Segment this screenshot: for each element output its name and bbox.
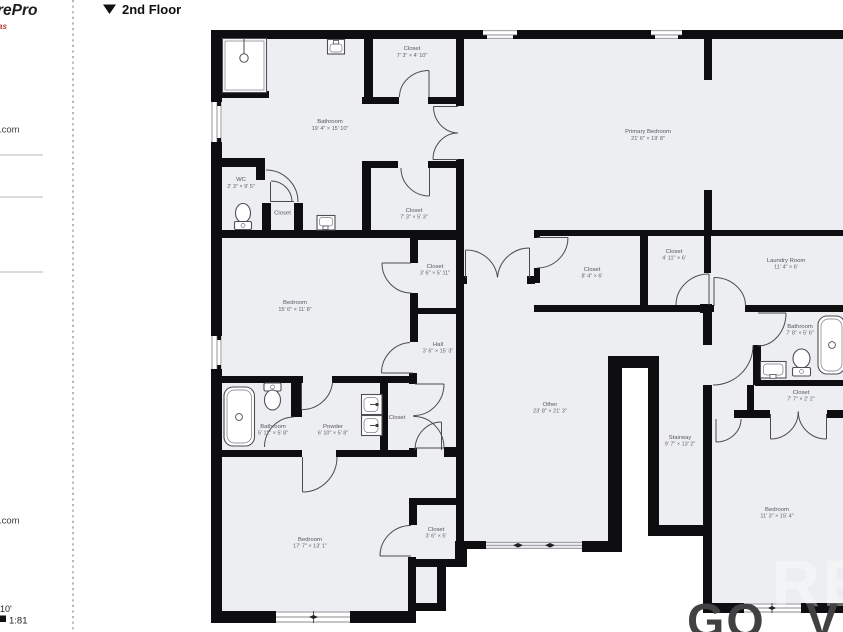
svg-text:Primary Bedroom: Primary Bedroom [625,129,671,135]
svg-text:11' 3" × 15' 4": 11' 3" × 15' 4" [760,514,793,520]
svg-text:WC: WC [236,177,247,183]
svg-text:Closet: Closet [428,527,445,533]
svg-text:Closet: Closet [584,267,601,273]
svg-text:23' 8" × 21' 3": 23' 8" × 21' 3" [533,409,567,415]
svg-text:Other: Other [543,402,558,408]
svg-text:Stairway: Stairway [669,435,692,441]
svg-text:as: as [0,22,7,31]
svg-text:Bedroom: Bedroom [298,537,322,543]
svg-text:Hall: Hall [433,342,443,348]
svg-text:9' 7" × 13' 2": 9' 7" × 13' 2" [665,442,696,448]
svg-text:17' 7" × 13' 1": 17' 7" × 13' 1" [293,544,327,550]
svg-text:Closet: Closet [427,264,444,270]
svg-text:Bedroom: Bedroom [283,300,307,306]
svg-text:3' 6" × 5' 11": 3' 6" × 5' 11" [420,271,450,277]
svg-text:2nd Floor: 2nd Floor [122,2,181,17]
svg-text:21' 6" × 19' 8": 21' 6" × 19' 8" [631,136,665,142]
svg-text:11' 4" × 6': 11' 4" × 6' [774,265,798,271]
svg-text:15' 6" × 11' 8": 15' 6" × 11' 8" [278,307,311,313]
svg-text:V: V [806,595,838,632]
svg-text:Closet: Closet [666,249,683,255]
svg-text:Closet: Closet [274,211,291,217]
svg-text:Powder: Powder [323,424,343,430]
svg-text:Bathroom: Bathroom [787,324,813,330]
svg-text:7' 7" × 2' 2": 7' 7" × 2' 2" [787,397,815,403]
svg-text:8' 4" × 6': 8' 4" × 6' [581,274,602,280]
svg-text:Closet: Closet [793,390,810,396]
svg-text:Closet: Closet [404,46,421,52]
svg-text:10': 10' [0,604,12,614]
svg-text:4' 11" × 6': 4' 11" × 6' [662,256,686,262]
svg-text:Closet: Closet [389,415,406,421]
svg-text:7' 3" × 5' 3": 7' 3" × 5' 3" [400,215,428,221]
svg-text:19' 4" × 15' 10": 19' 4" × 15' 10" [312,126,349,132]
svg-text:Laundry Room: Laundry Room [767,258,806,264]
svg-text:3' 6" × 15' 3": 3' 6" × 15' 3" [423,349,454,355]
svg-text:3' 6" × 5': 3' 6" × 5' [425,534,446,540]
svg-text:Bedroom: Bedroom [765,507,789,513]
svg-text:7' 3" × 4' 10": 7' 3" × 4' 10" [397,53,428,59]
svg-text:5' 11" × 5' 8": 5' 11" × 5' 8" [258,431,288,437]
svg-text:Bathroom: Bathroom [260,424,286,430]
svg-text:.com: .com [0,516,20,527]
svg-text:Bathroom: Bathroom [317,119,343,125]
svg-text:6' 10" × 5' 8": 6' 10" × 5' 8" [318,431,349,437]
svg-text:rePro: rePro [0,2,38,19]
svg-text:7' 8" × 5' 6": 7' 8" × 5' 6" [786,331,814,337]
svg-text:.com: .com [0,125,20,136]
svg-text:GO: GO [687,595,766,632]
svg-text:1:81: 1:81 [9,616,28,627]
svg-text:2' 3" × 9' 5": 2' 3" × 9' 5" [227,184,255,190]
svg-text:Closet: Closet [406,208,423,214]
